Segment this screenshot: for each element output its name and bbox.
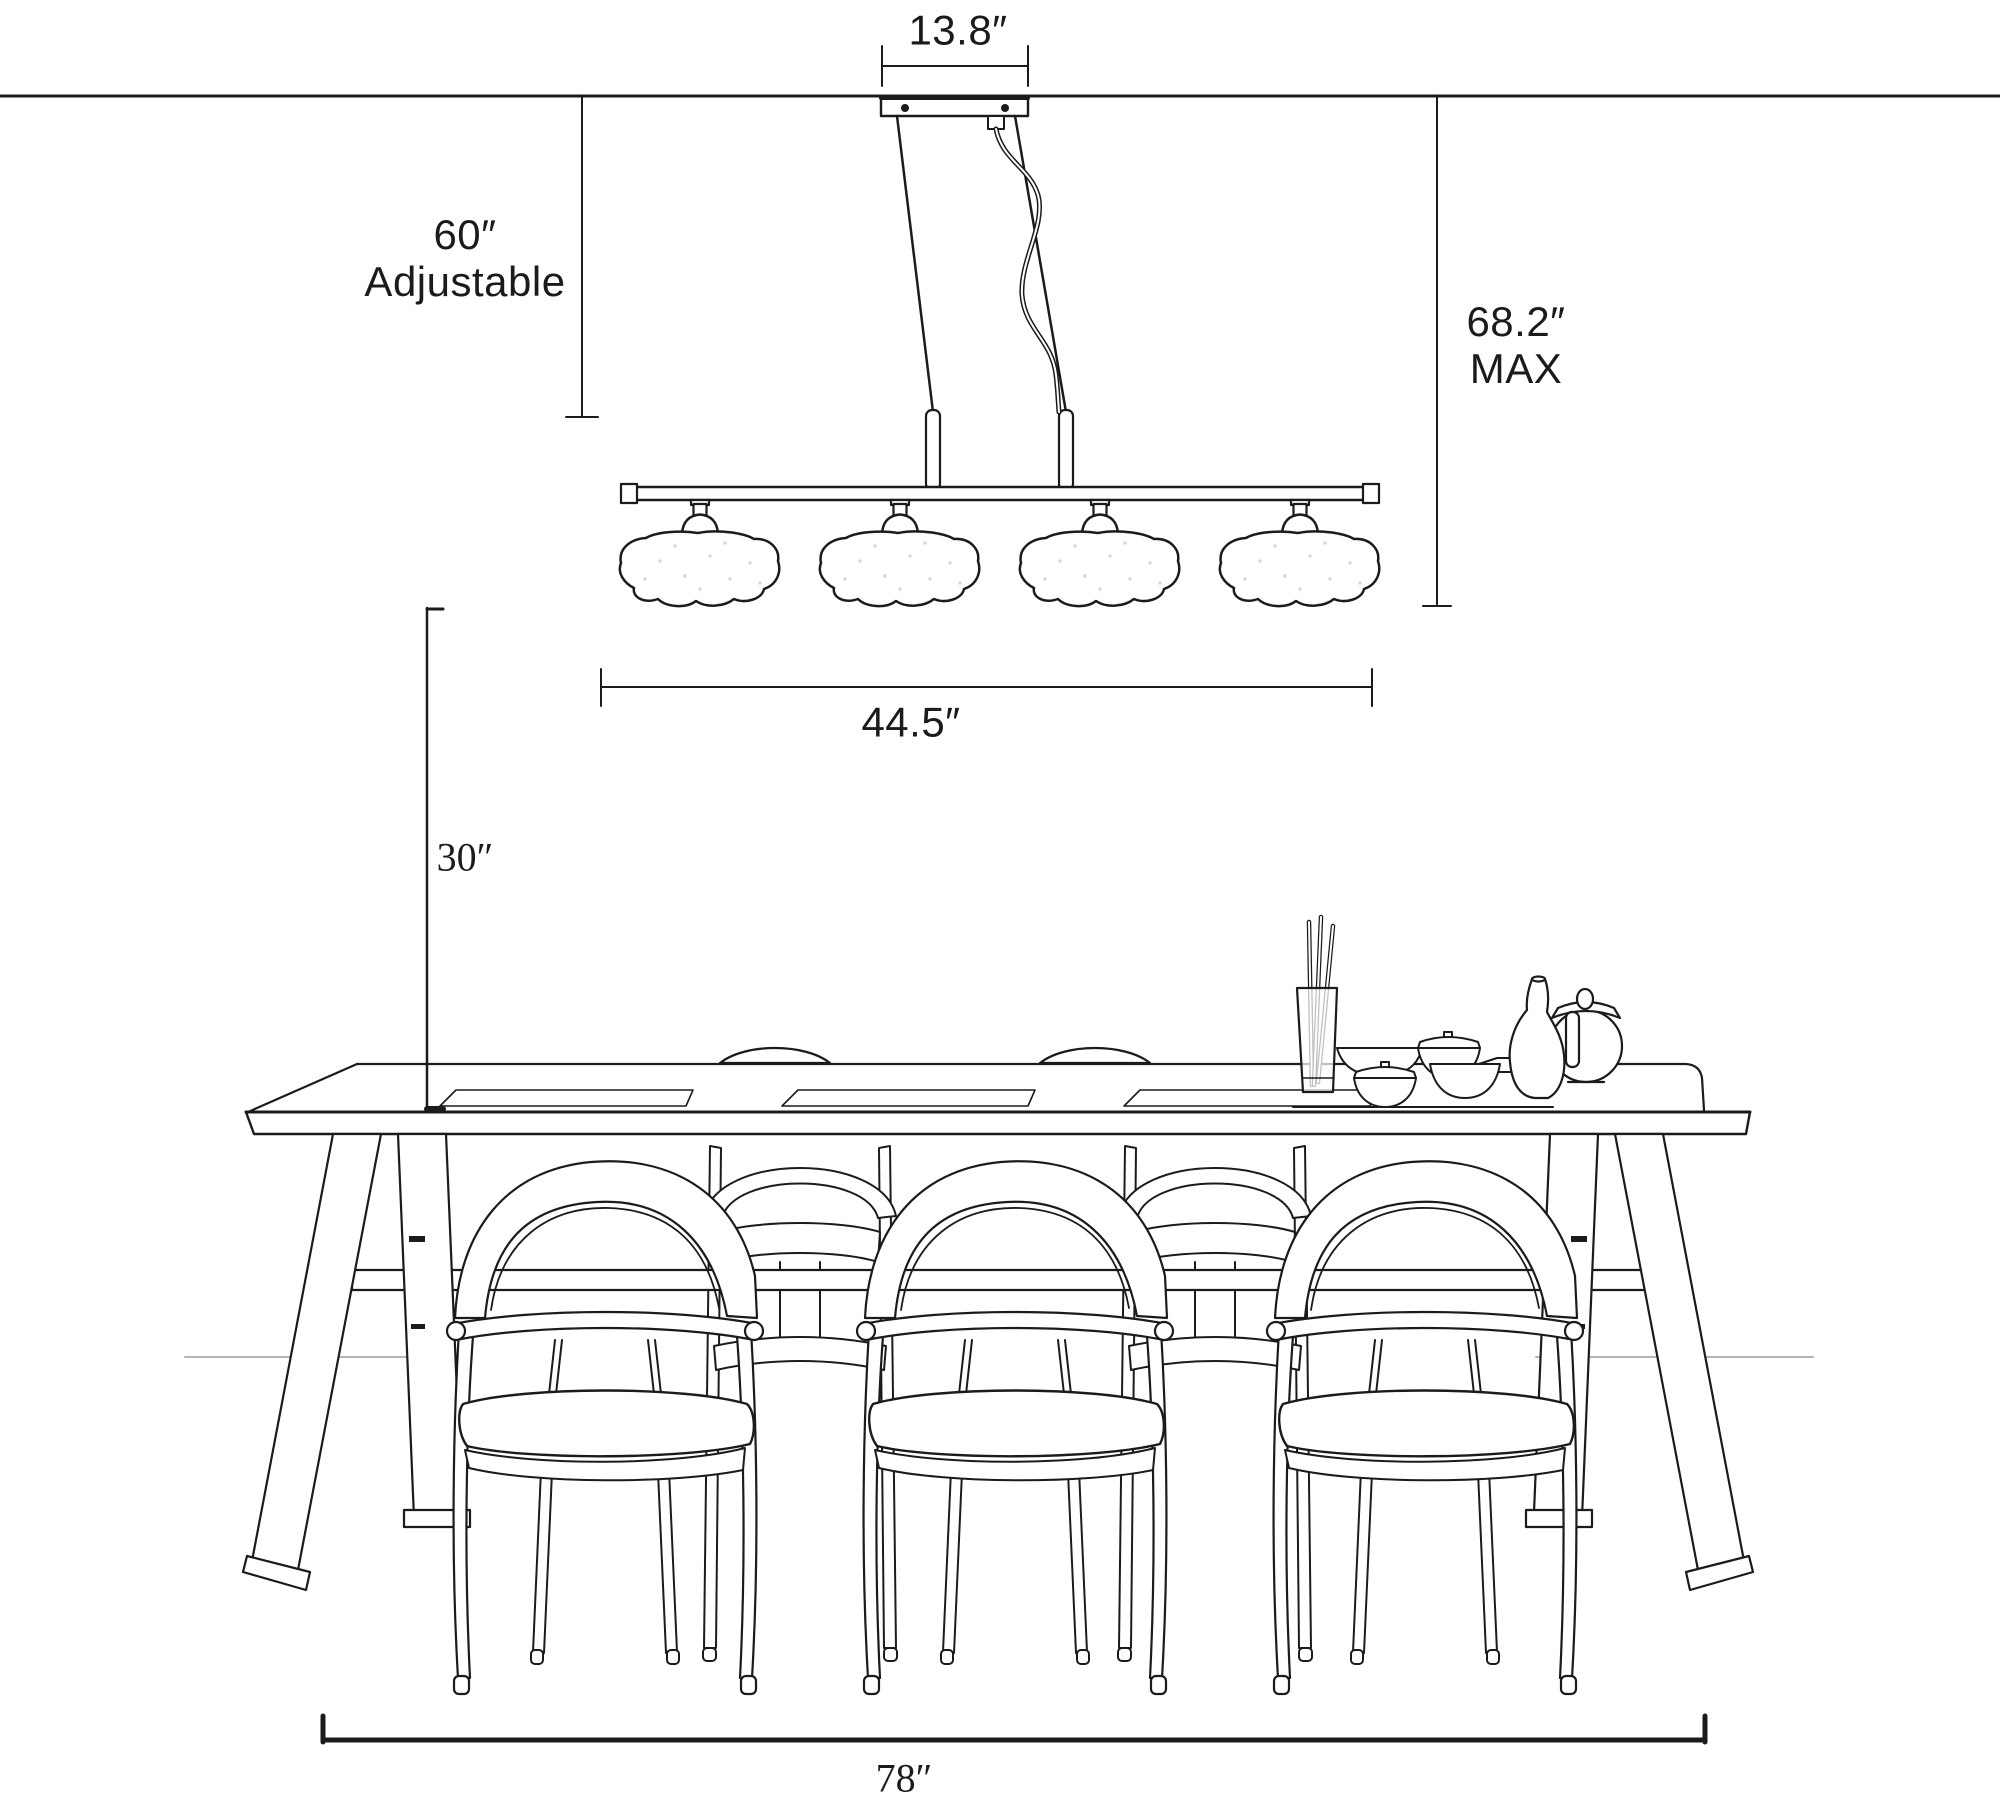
table-leg-left (243, 1134, 470, 1590)
max-drop-value: 68.2″ (1466, 298, 1565, 345)
glass-shade-1 (620, 500, 779, 606)
line-art (0, 0, 2000, 1813)
placemat (440, 1090, 1377, 1106)
pendant-canopy (881, 98, 1028, 129)
max-drop-caption: MAX (1466, 345, 1565, 392)
dimension-fixture-length (601, 669, 1372, 706)
fixture-rail (621, 484, 1379, 503)
glass-shade-4 (1220, 500, 1379, 606)
canopy-screw-left (901, 104, 909, 112)
suspension-height-caption: Adjustable (364, 258, 565, 305)
dimension-table-length (323, 1716, 1705, 1742)
table-stretcher (352, 1270, 1648, 1290)
dining-table-edge (246, 1112, 1750, 1134)
chopstick-cup (1297, 917, 1337, 1092)
dimension-diagram: 13.8″ 60″ Adjustable 68.2″ MAX 44.5″ 30″… (0, 0, 2000, 1813)
suspension-height-value: 60″ (364, 211, 565, 258)
dimension-max-drop (1423, 96, 1451, 606)
glass-shade-2 (820, 500, 979, 606)
front-chair-3 (1267, 1161, 1583, 1694)
power-cord (996, 129, 1059, 412)
rail-end-cap-right (1363, 484, 1379, 503)
rail-end-cap-left (621, 484, 637, 503)
fixture-length-label: 44.5″ (861, 698, 960, 745)
table-length-label: 78″ (876, 1757, 933, 1802)
max-drop-label: 68.2″ MAX (1466, 298, 1565, 392)
rear-chair-top-peek (720, 1048, 1150, 1063)
carafe (1510, 977, 1565, 1099)
glass-shade-3 (1020, 500, 1179, 606)
suspension-height-label: 60″ Adjustable (364, 211, 565, 305)
suspension-rod-left (897, 116, 940, 490)
canopy-screw-right (1001, 104, 1009, 112)
canopy-width-label: 13.8″ (908, 6, 1007, 53)
fixture-to-table-label: 30″ (437, 836, 494, 881)
dimension-suspension-height (566, 96, 598, 417)
